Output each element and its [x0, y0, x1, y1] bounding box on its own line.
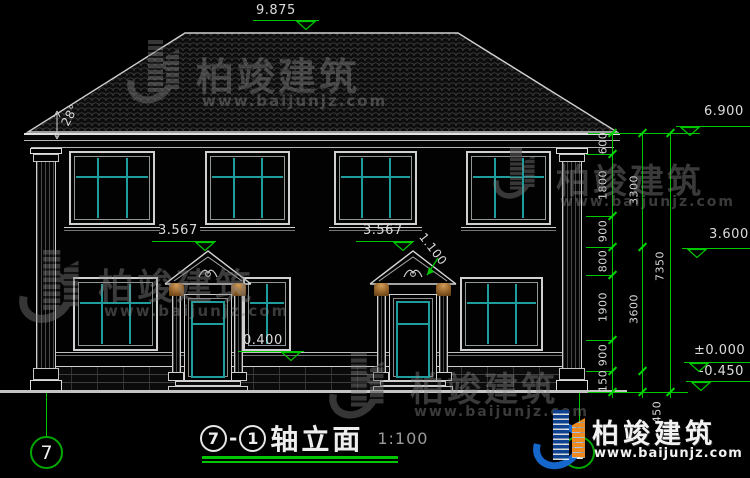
- floor2-level-label: 3.600: [709, 227, 749, 242]
- title-dash: -: [229, 426, 237, 450]
- axis-bubble-7: 7: [30, 436, 63, 469]
- title-underline-thick: [202, 456, 398, 459]
- dim-label: 900: [597, 220, 610, 243]
- window-mullion: [261, 158, 263, 218]
- window-sash: [74, 156, 150, 220]
- watermark-logo-icon: [330, 352, 393, 421]
- site-level-label: -0.450: [699, 364, 744, 379]
- roof-angle-arrow: [51, 110, 63, 140]
- window-sill: [64, 227, 160, 231]
- drawing-title: 7 - 1 轴立面 1:100: [200, 418, 428, 458]
- window-sash: [339, 156, 412, 220]
- column-plinth: [231, 372, 247, 381]
- window-transom: [76, 176, 148, 178]
- brand-site: www.baijunjz.com: [594, 446, 743, 461]
- window-mullion: [233, 158, 235, 218]
- dim-stub: [586, 216, 612, 217]
- title-axis-circle-7: 7: [200, 425, 227, 452]
- pilaster-base: [33, 368, 59, 380]
- dim-label: 800: [597, 250, 610, 273]
- column-capital: [374, 283, 389, 296]
- column-plinth: [168, 372, 184, 381]
- window-sash: [465, 282, 538, 346]
- watermark-right: 柏竣建筑 www.baijunjz.com: [494, 148, 750, 212]
- watermark-left: 柏竣建筑 www.baijunjz.com: [20, 250, 260, 346]
- pediment-height-arrow: [420, 256, 442, 282]
- brand-logo-building-blue-icon: [553, 410, 569, 460]
- pilaster-capital: [33, 154, 59, 162]
- level-triangle-icon: [393, 242, 413, 251]
- window-mullion: [97, 158, 99, 218]
- watermark-site: www.baijunjz.com: [202, 92, 387, 110]
- watermark-site: www.baijunjz.com: [560, 194, 735, 210]
- dim-label: 3600: [628, 294, 641, 324]
- watermark-logo-icon: [494, 148, 542, 201]
- window-2f-2: [205, 151, 290, 225]
- dim-label-total: 7350: [654, 251, 667, 281]
- axis-leader-left: [46, 393, 47, 436]
- brand-logo: 柏竣建筑 www.baijunjz.com: [532, 408, 750, 474]
- level-triangle-icon: [687, 249, 707, 258]
- level-triangle-icon: [680, 127, 700, 136]
- column-capital: [436, 283, 451, 296]
- pediment-level-label-right: 3.567: [363, 223, 403, 238]
- window-mullion: [126, 158, 128, 218]
- level-triangle-icon: [281, 352, 301, 361]
- dim-stub: [586, 247, 612, 248]
- dim-stub: [586, 275, 612, 276]
- title-axis-circle-1: 1: [239, 425, 266, 452]
- zero-level-label: ±0.000: [694, 343, 745, 358]
- window-sash: [210, 156, 285, 220]
- window-transom: [467, 302, 536, 304]
- title-scale: 1:100: [377, 429, 428, 448]
- title-text: 轴立面: [270, 418, 363, 458]
- eave-cornice-upper: [24, 133, 620, 141]
- watermark-logo-icon: [128, 40, 188, 106]
- ridge-level-label: 9.875: [256, 3, 296, 18]
- dim-stub: [586, 340, 612, 341]
- window-sill: [461, 227, 556, 231]
- window-mullion: [361, 158, 363, 218]
- door-transom: [398, 323, 428, 325]
- window-2f-3: [334, 151, 417, 225]
- eave-cornice-lower: [31, 141, 614, 148]
- watermark-logo-icon: [20, 250, 89, 326]
- window-mullion: [487, 284, 489, 344]
- window-transom: [341, 176, 410, 178]
- dim-label: 1900: [597, 292, 610, 322]
- window-mullion: [515, 284, 517, 344]
- window-2f-1: [69, 151, 155, 225]
- title-underline-thin: [202, 461, 398, 463]
- elevation-drawing-canvas: 9.875 6.900 3.600 ±0.000 -0.450 3.567 3.…: [0, 0, 750, 478]
- level-triangle-icon: [691, 382, 711, 391]
- brand-logo-building-orange-icon: [572, 418, 585, 458]
- window-sill: [200, 227, 295, 231]
- window-mullion: [389, 158, 391, 218]
- pediment-level-label-left: 3.567: [158, 223, 198, 238]
- watermark-roof: 柏竣建筑 www.baijunjz.com: [128, 40, 388, 120]
- watermark-site: www.baijunjz.com: [104, 302, 289, 320]
- window-1f-right: [460, 277, 543, 351]
- window-transom: [212, 176, 283, 178]
- eave-level-label: 6.900: [704, 104, 744, 119]
- level-triangle-icon: [296, 21, 316, 30]
